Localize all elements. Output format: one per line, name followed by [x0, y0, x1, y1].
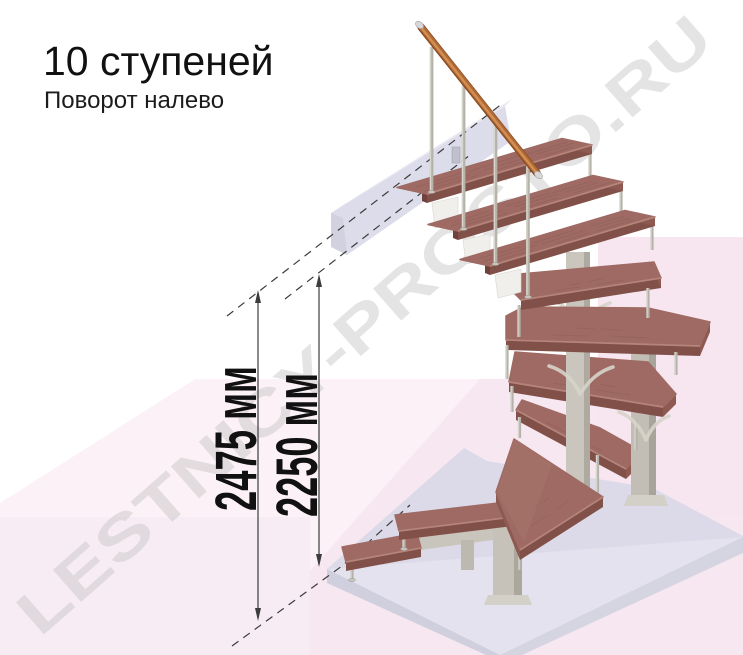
svg-text:2250 мм: 2250 мм: [265, 373, 330, 517]
svg-text:2475 мм: 2475 мм: [204, 366, 269, 511]
svg-text:10 ступеней: 10 ступеней: [43, 38, 274, 84]
svg-text:Поворот налево: Поворот налево: [44, 87, 224, 114]
